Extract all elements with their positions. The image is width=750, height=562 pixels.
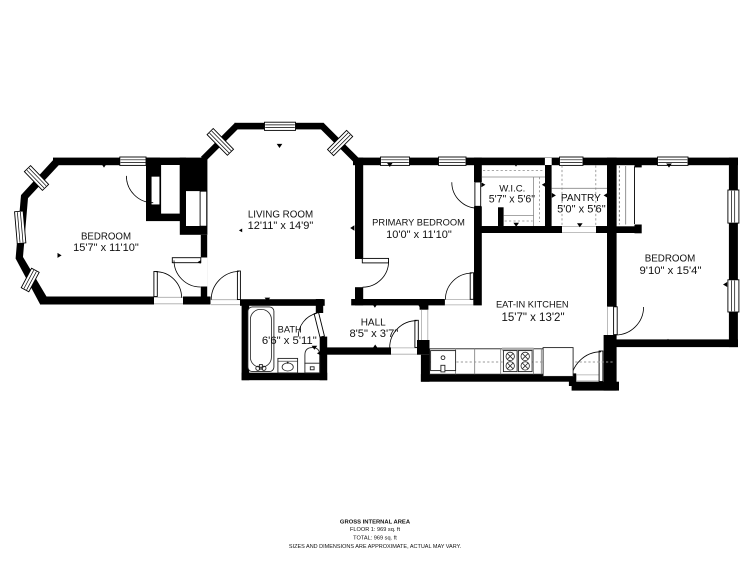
svg-text:6'6" x 5'11": 6'6" x 5'11" — [262, 335, 317, 347]
svg-text:TOTAL: 969 sq. ft: TOTAL: 969 sq. ft — [353, 535, 397, 541]
svg-text:5'7" x 5'6": 5'7" x 5'6" — [489, 193, 536, 205]
svg-text:HALL: HALL — [361, 317, 386, 328]
svg-text:FLOOR 1: 969 sq. ft: FLOOR 1: 969 sq. ft — [350, 527, 401, 533]
svg-text:PRIMARY BEDROOM: PRIMARY BEDROOM — [372, 218, 465, 228]
svg-text:EAT-IN KITCHEN: EAT-IN KITCHEN — [496, 300, 569, 310]
svg-text:BATH: BATH — [278, 325, 302, 335]
svg-text:SIZES AND DIMENSIONS ARE APPRO: SIZES AND DIMENSIONS ARE APPROXIMATE, AC… — [289, 544, 462, 550]
svg-text:BEDROOM: BEDROOM — [645, 254, 696, 265]
svg-text:LIVING ROOM: LIVING ROOM — [248, 209, 313, 220]
svg-text:10'0" x 11'10": 10'0" x 11'10" — [386, 229, 452, 241]
svg-text:9'10" x 15'4": 9'10" x 15'4" — [640, 265, 702, 277]
svg-text:5'0" x 5'6": 5'0" x 5'6" — [557, 203, 606, 215]
svg-text:15'7" x 13'2": 15'7" x 13'2" — [501, 312, 564, 324]
svg-text:GROSS INTERNAL AREA: GROSS INTERNAL AREA — [340, 519, 411, 525]
svg-text:12'11" x 14'9": 12'11" x 14'9" — [248, 220, 314, 232]
svg-text:15'7" x 11'10": 15'7" x 11'10" — [73, 242, 139, 254]
svg-text:8'5" x 3'7": 8'5" x 3'7" — [349, 328, 398, 340]
svg-text:BEDROOM: BEDROOM — [81, 232, 131, 243]
